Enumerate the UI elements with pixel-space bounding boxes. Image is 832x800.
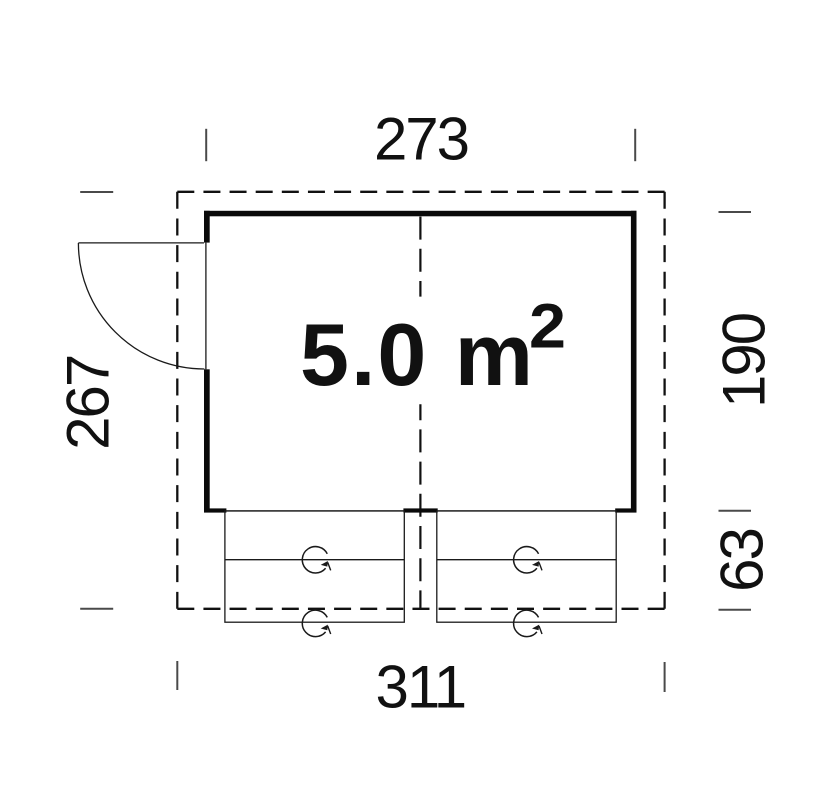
- svg-text:190: 190: [710, 313, 777, 408]
- svg-text:5.0 m: 5.0 m: [300, 305, 535, 404]
- svg-text:273: 273: [374, 105, 468, 172]
- svg-text:63: 63: [709, 529, 776, 592]
- svg-text:311: 311: [375, 654, 465, 721]
- svg-text:2: 2: [529, 291, 566, 361]
- svg-text:267: 267: [55, 356, 122, 450]
